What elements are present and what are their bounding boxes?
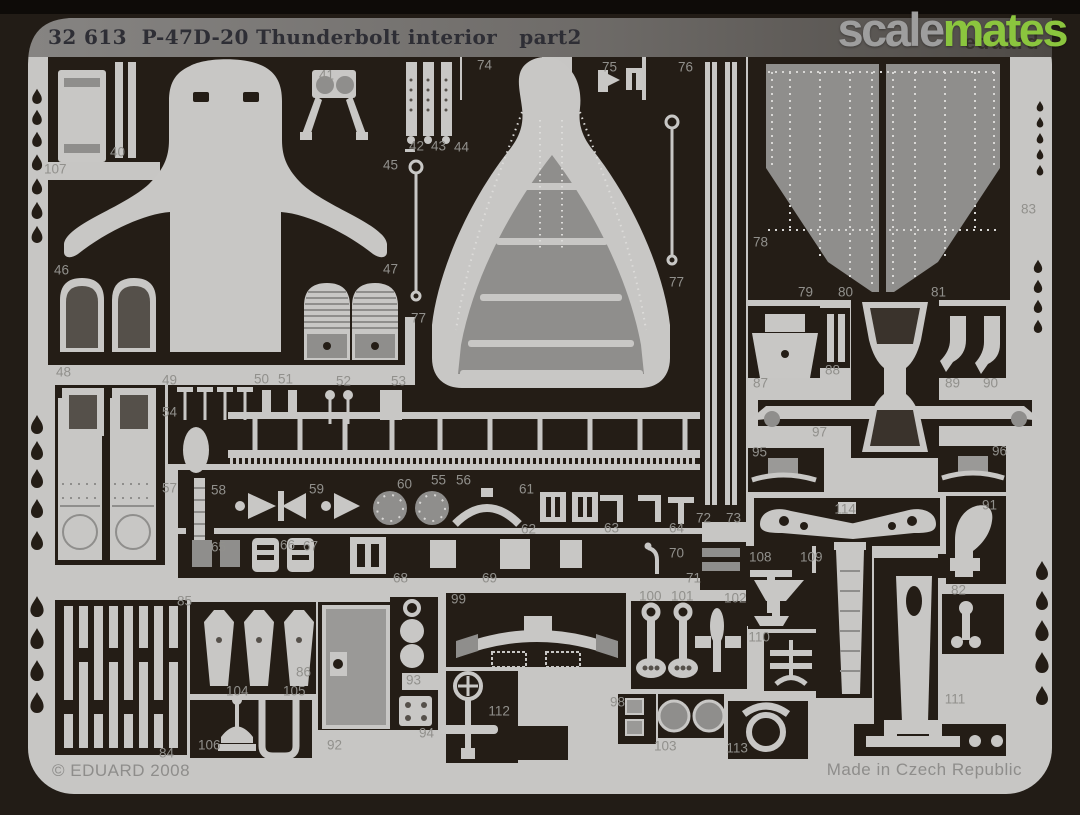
part-number-label: 67 xyxy=(303,539,318,554)
part-number-label: 58 xyxy=(211,483,226,498)
part-number-label: 101 xyxy=(671,589,694,604)
part-number-label: 86 xyxy=(296,665,311,680)
part-number-label: 47 xyxy=(383,262,398,277)
part-number-label: 96 xyxy=(992,444,1007,459)
part-number-label: 57 xyxy=(162,481,177,496)
part-number-label: 88 xyxy=(825,363,840,378)
part-number-label: 62 xyxy=(521,522,536,537)
part-number-label: 77 xyxy=(411,311,426,326)
part-number-label: 63 xyxy=(604,521,619,536)
part-number-label: 45 xyxy=(383,158,398,173)
part-number-label: 73 xyxy=(726,511,741,526)
part-number-label: 108 xyxy=(749,550,772,565)
part-number-label: 85 xyxy=(177,594,192,609)
part-number-label: 54 xyxy=(162,405,177,420)
part-number-label: 106 xyxy=(198,738,221,753)
watermark-mates: mates xyxy=(943,3,1066,56)
part-number-label: 52 xyxy=(336,374,351,389)
part-number-labels: 1074041424344457475767883798081464777774… xyxy=(0,0,1080,815)
part-number-label: 87 xyxy=(753,376,768,391)
part-number-label: 48 xyxy=(56,365,71,380)
part-number-label: 70 xyxy=(669,546,684,561)
part-number-label: 50 xyxy=(254,372,269,387)
part-number-label: 105 xyxy=(283,684,306,699)
part-number-label: 77 xyxy=(669,275,684,290)
part-number-label: 40 xyxy=(110,145,125,160)
part-number-label: 65 xyxy=(211,540,226,555)
part-number-label: 61 xyxy=(519,482,534,497)
part-number-label: 110 xyxy=(748,630,770,645)
part-number-label: 79 xyxy=(798,285,813,300)
part-number-label: 114 xyxy=(834,502,856,517)
part-number-label: 80 xyxy=(838,285,853,300)
part-number-label: 89 xyxy=(945,376,960,391)
part-number-label: 82 xyxy=(951,583,966,598)
part-number-label: 113 xyxy=(726,741,748,756)
part-number-label: 95 xyxy=(752,445,767,460)
part-number-label: 94 xyxy=(419,726,434,741)
part-number-label: 81 xyxy=(931,285,946,300)
part-number-label: 84 xyxy=(159,746,174,761)
part-number-label: 69 xyxy=(482,571,497,586)
part-number-label: 42 xyxy=(409,139,424,154)
part-number-label: 78 xyxy=(753,235,768,250)
part-number-label: 60 xyxy=(397,477,412,492)
part-number-label: 66 xyxy=(280,538,295,553)
part-number-label: 109 xyxy=(800,550,823,565)
scalemates-watermark: scalemates xyxy=(838,2,1066,57)
part-number-label: 75 xyxy=(602,60,617,75)
part-number-label: 55 xyxy=(431,473,446,488)
product-photo: 32 613 P-47D-20 Thunderbolt interior par… xyxy=(0,0,1080,815)
part-number-label: 111 xyxy=(945,692,966,707)
part-number-label: 44 xyxy=(454,140,469,155)
part-number-label: 99 xyxy=(451,592,466,607)
part-number-label: 74 xyxy=(477,58,492,73)
part-number-label: 104 xyxy=(226,684,249,699)
part-number-label: 43 xyxy=(431,139,446,154)
part-number-label: 51 xyxy=(278,372,293,387)
part-number-label: 53 xyxy=(391,374,406,389)
part-number-label: 72 xyxy=(696,511,711,526)
part-number-label: 102 xyxy=(724,591,747,606)
part-number-label: 103 xyxy=(654,739,677,754)
part-number-label: 49 xyxy=(162,373,177,388)
part-number-label: 41 xyxy=(319,68,334,83)
part-number-label: 107 xyxy=(44,162,67,177)
part-number-label: 112 xyxy=(488,704,510,719)
part-number-label: 83 xyxy=(1021,202,1036,217)
part-number-label: 100 xyxy=(639,589,662,604)
part-number-label: 64 xyxy=(669,521,684,536)
part-number-label: 76 xyxy=(678,60,693,75)
part-number-label: 90 xyxy=(983,376,998,391)
part-number-label: 56 xyxy=(456,473,471,488)
part-number-label: 68 xyxy=(393,571,408,586)
part-number-label: 97 xyxy=(812,425,827,440)
part-number-label: 71 xyxy=(686,571,701,586)
part-number-label: 46 xyxy=(54,263,69,278)
part-number-label: 91 xyxy=(982,498,997,513)
part-number-label: 93 xyxy=(406,673,421,688)
part-number-label: 59 xyxy=(309,482,324,497)
part-number-label: 92 xyxy=(327,738,342,753)
watermark-scale: scale xyxy=(838,3,943,56)
part-number-label: 98 xyxy=(610,695,625,710)
